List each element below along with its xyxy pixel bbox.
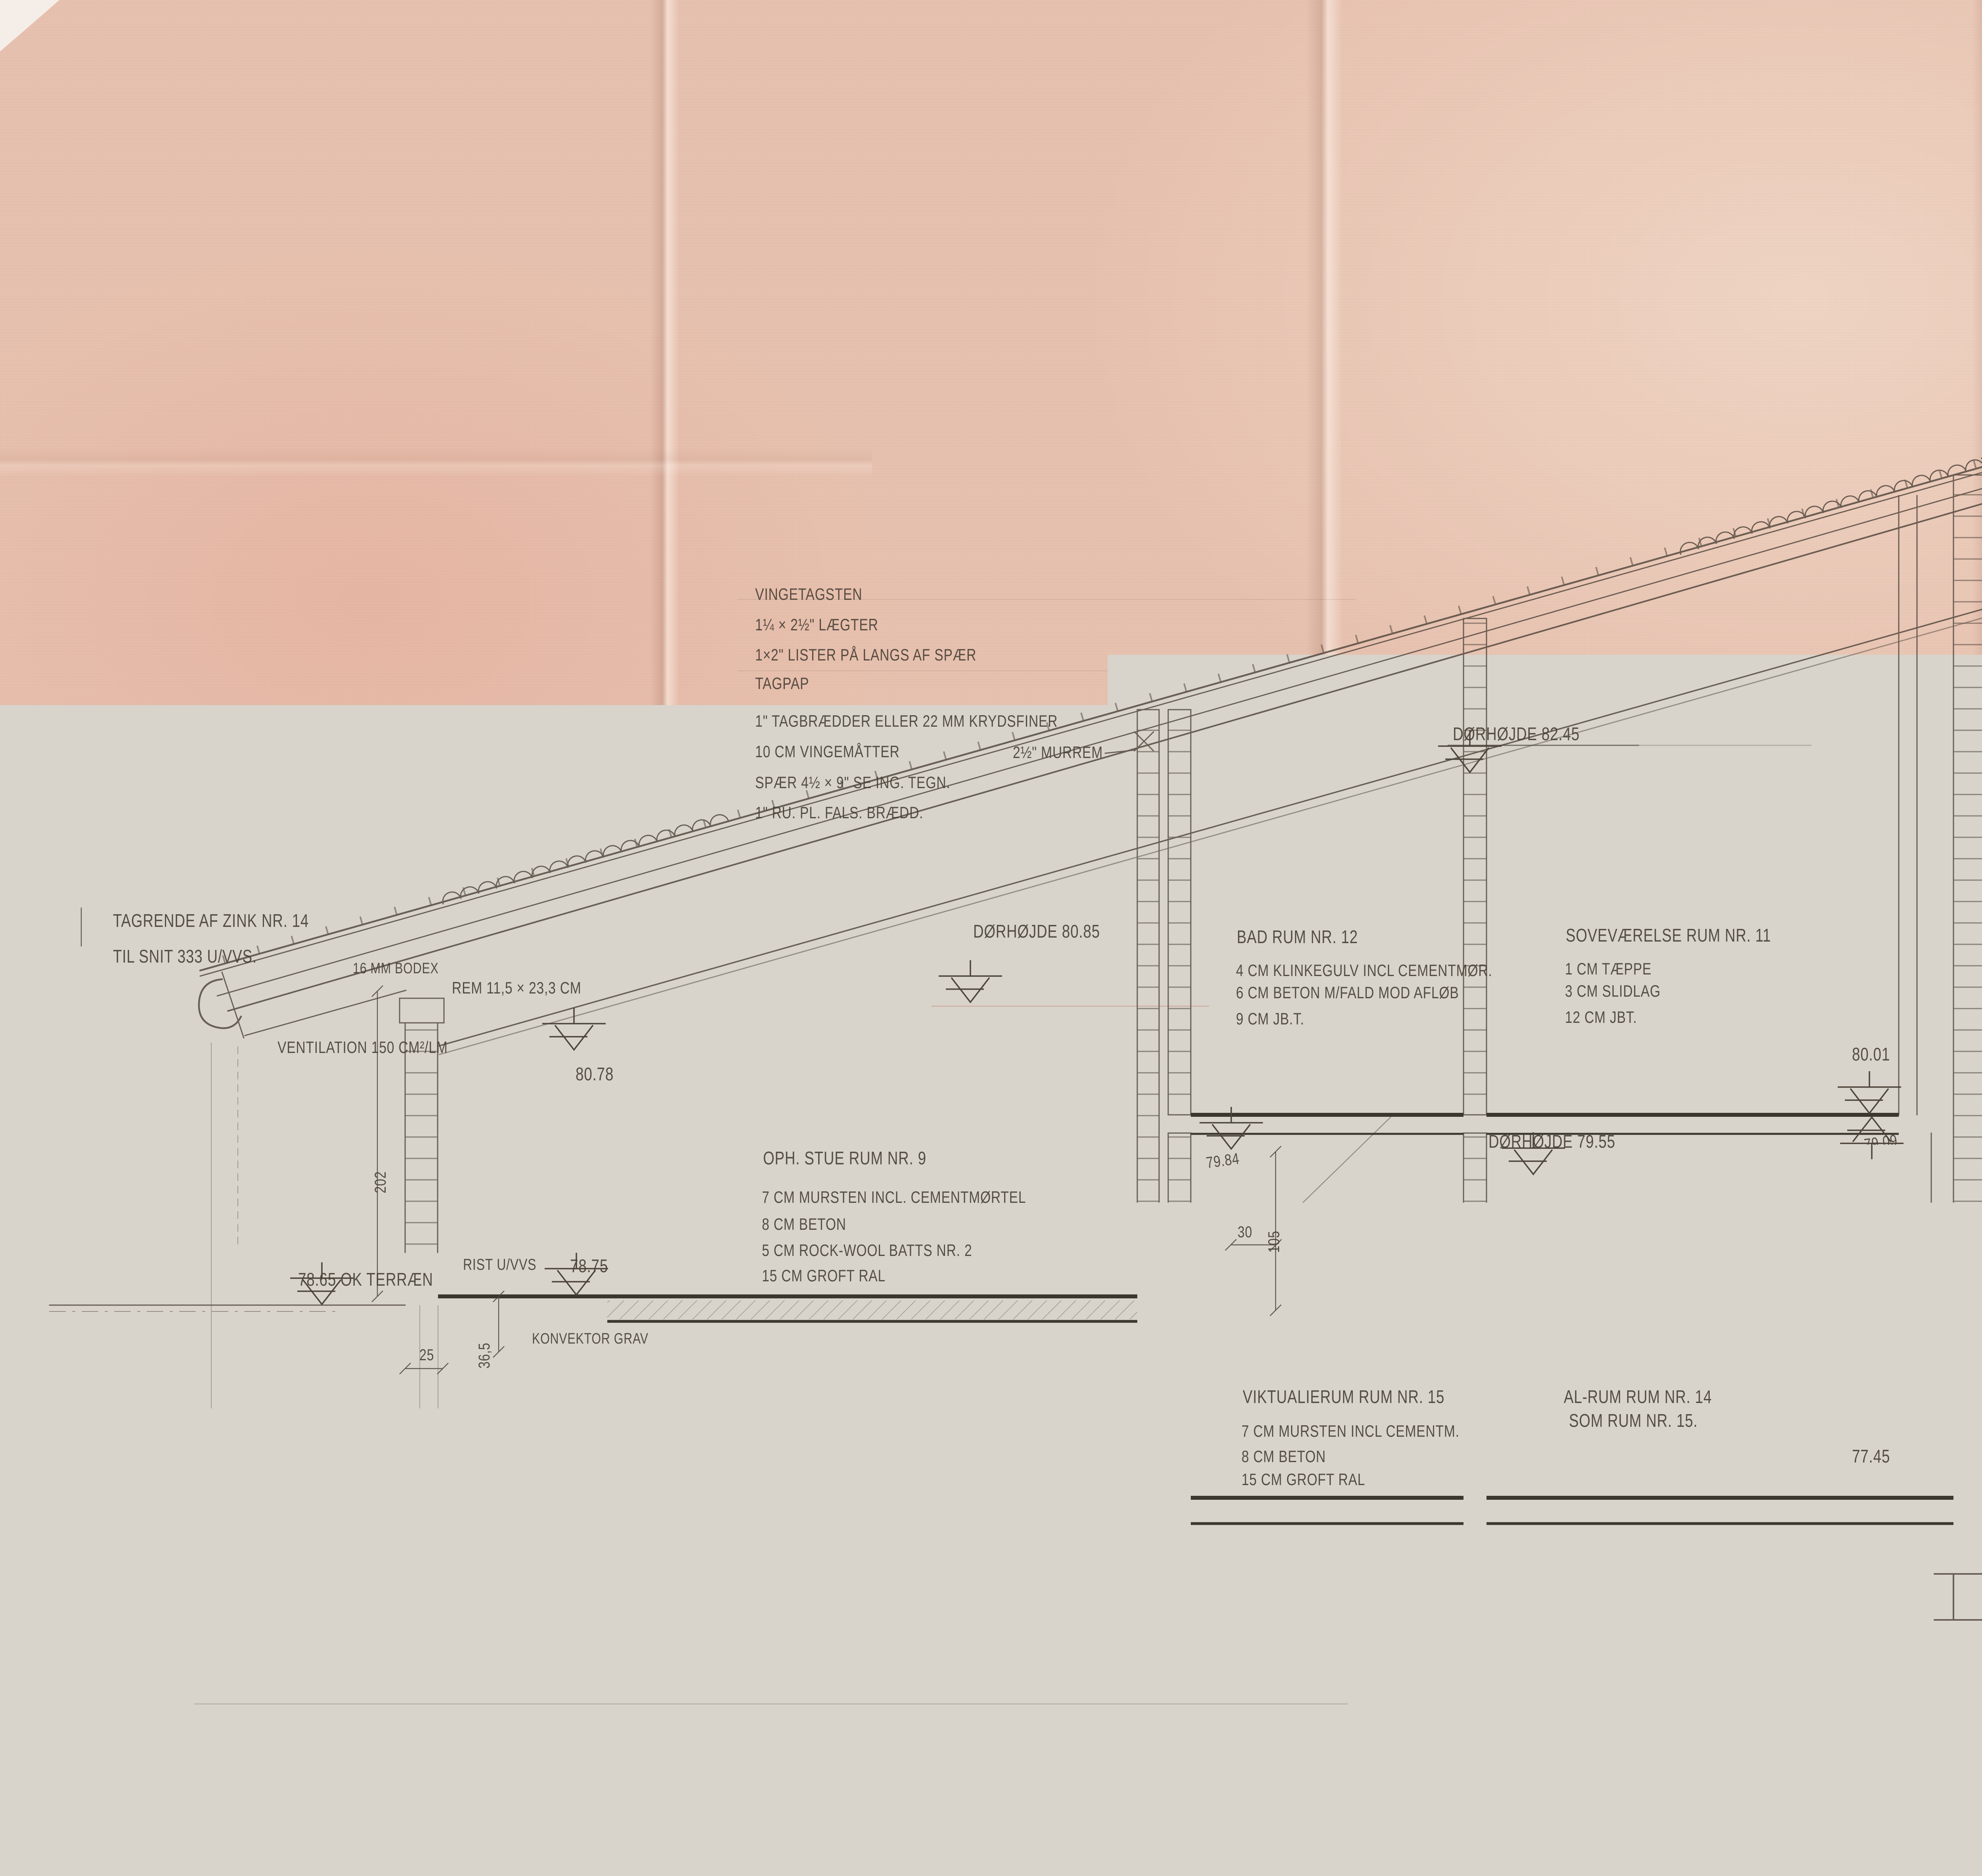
- extension-lines: [211, 1043, 1982, 1616]
- pencil-lines: [50, 450, 1982, 1620]
- dim-12: 12: [412, 1548, 427, 1566]
- dim-25: 25: [419, 1346, 434, 1364]
- note-ventilation: VENTILATION 150 CM²/LM: [277, 1038, 448, 1057]
- dim-100: 100: [1295, 1547, 1318, 1565]
- roof-spec-line-7: SPÆR 4½ × 9" SE ING. TEGN.: [755, 773, 950, 792]
- roof-spec-line-8: 1" RU. PL. FALS. BRÆDD.: [755, 803, 923, 822]
- room-stue-line-1: 7 CM MURSTEN INCL. CEMENTMØRTEL: [762, 1188, 1026, 1207]
- room-sove-title: SOVEVÆRELSE RUM NR. 11: [1566, 925, 1771, 946]
- dim-510: 510: [1502, 1587, 1525, 1604]
- pencil-guides: [99, 491, 1982, 1476]
- level-80-01-floor: 80.01: [1852, 1043, 1890, 1065]
- room-vikt-title: VIKTUALIERUM RUM NR. 15: [1243, 1386, 1444, 1407]
- room-bad-line-1: 4 CM KLINKEGULV INCL CEMENTMØR.: [1236, 961, 1492, 980]
- door-height-3: DØRHØJDE 79.55: [1488, 1131, 1615, 1152]
- roof-spec-line-5: 1" TAGBRÆDDER ELLER 22 MM KRYDSFINER: [755, 712, 1058, 731]
- room-bad-line-3: 9 CM JB.T.: [1236, 1009, 1304, 1028]
- note-bodex: 16 MM BODEX: [353, 960, 439, 977]
- roof-spec-line-2: 1¼ × 2½" LÆGTER: [755, 615, 878, 634]
- room-bad-title: BAD RUM NR. 12: [1237, 926, 1358, 948]
- room-sove-line-1: 1 CM TÆPPE: [1565, 959, 1651, 978]
- room-vikt-line-1: 7 CM MURSTEN INCL CEMENTM.: [1242, 1422, 1460, 1441]
- caption-text: GENNEM RUM NR. 9 - 11 - 12 - 14 - OG 15: [326, 1678, 627, 1701]
- roof-spec-line-4: TAGPAP: [755, 674, 809, 693]
- room-alrum-line: SOM RUM NR. 15.: [1569, 1410, 1698, 1431]
- room-alrum-title: AL-RUM RUM NR. 14: [1564, 1386, 1712, 1407]
- dim-202: 202: [372, 1171, 390, 1193]
- roof-spec-line-1: VINGETAGSTEN: [755, 585, 862, 604]
- note-konvektor: KONVEKTOR GRAV: [532, 1330, 649, 1348]
- dim-138: 138: [291, 1549, 314, 1567]
- note-rem: REM 11,5 × 23,3 CM: [452, 978, 582, 997]
- drawing-sheet: TAGRENDE AF ZINK NR. 14 TIL SNIT 333 U/V…: [0, 0, 1982, 1876]
- door-height-1: DØRHØJDE 82.45: [1453, 723, 1580, 745]
- dim-150: 150: [295, 1589, 318, 1607]
- dim-105: 105: [1265, 1231, 1283, 1253]
- note-tagrende-1: TAGRENDE AF ZINK NR. 14: [113, 910, 309, 931]
- dim-450: 450: [721, 1587, 743, 1605]
- slab-lines: [438, 1115, 1982, 1524]
- dim-30-c: 30: [1238, 1223, 1252, 1241]
- room-stue-line-2: 8 CM BETON: [762, 1215, 846, 1234]
- level-78-65-ok-terraen: 78.65 OK TERRÆN: [298, 1269, 433, 1290]
- level-78-75: 78.75: [570, 1255, 608, 1277]
- room-bad-line-2: 6 CM BETON M/FALD MOD AFLØB: [1236, 983, 1459, 1002]
- dim-14: 14: [1368, 1547, 1383, 1565]
- room-vikt-line-3: 15 CM GROFT RAL: [1242, 1470, 1365, 1489]
- room-sove-line-2: 3 CM SLIDLAG: [1565, 982, 1661, 1001]
- level-80-78: 80.78: [576, 1063, 614, 1085]
- caption-scale: SNIT 1:20: [201, 1678, 270, 1701]
- room-stue-line-3: 5 CM ROCK-WOOL BATTS NR. 2: [762, 1241, 972, 1260]
- room-vikt-line-2: 8 CM BETON: [1242, 1447, 1326, 1466]
- note-rist: RIST U/VVS: [463, 1256, 536, 1274]
- dim-36-5: 36,5: [476, 1343, 494, 1369]
- room-stue-title: OPH. STUE RUM NR. 9: [763, 1147, 926, 1169]
- note-pap-mid: PAP: [1491, 1480, 1515, 1497]
- room-stue-line-4: 15 CM GROFT RAL: [762, 1266, 886, 1285]
- door-height-2: DØRHØJDE 80.85: [973, 921, 1100, 942]
- text-underlines: [194, 445, 1982, 1870]
- roof-spec-line-3: 1×2" LISTER PÅ LANGS AF SPÆR: [755, 645, 976, 664]
- roof-spec-line-6: 10 CM VINGEMÅTTER: [755, 742, 900, 761]
- note-tagrende-2: TIL SNIT 333 U/VVS.: [113, 946, 257, 967]
- room-sove-line-3: 12 CM JBT.: [1565, 1008, 1637, 1027]
- dim-30-b: 30: [1955, 1587, 1970, 1605]
- dim-30-a: 30: [1138, 1588, 1153, 1606]
- dimension-lines: [206, 756, 1982, 1612]
- level-77-45: 77.45: [1852, 1445, 1890, 1467]
- note-murrem-half: 2½" MURREM: [1013, 743, 1103, 762]
